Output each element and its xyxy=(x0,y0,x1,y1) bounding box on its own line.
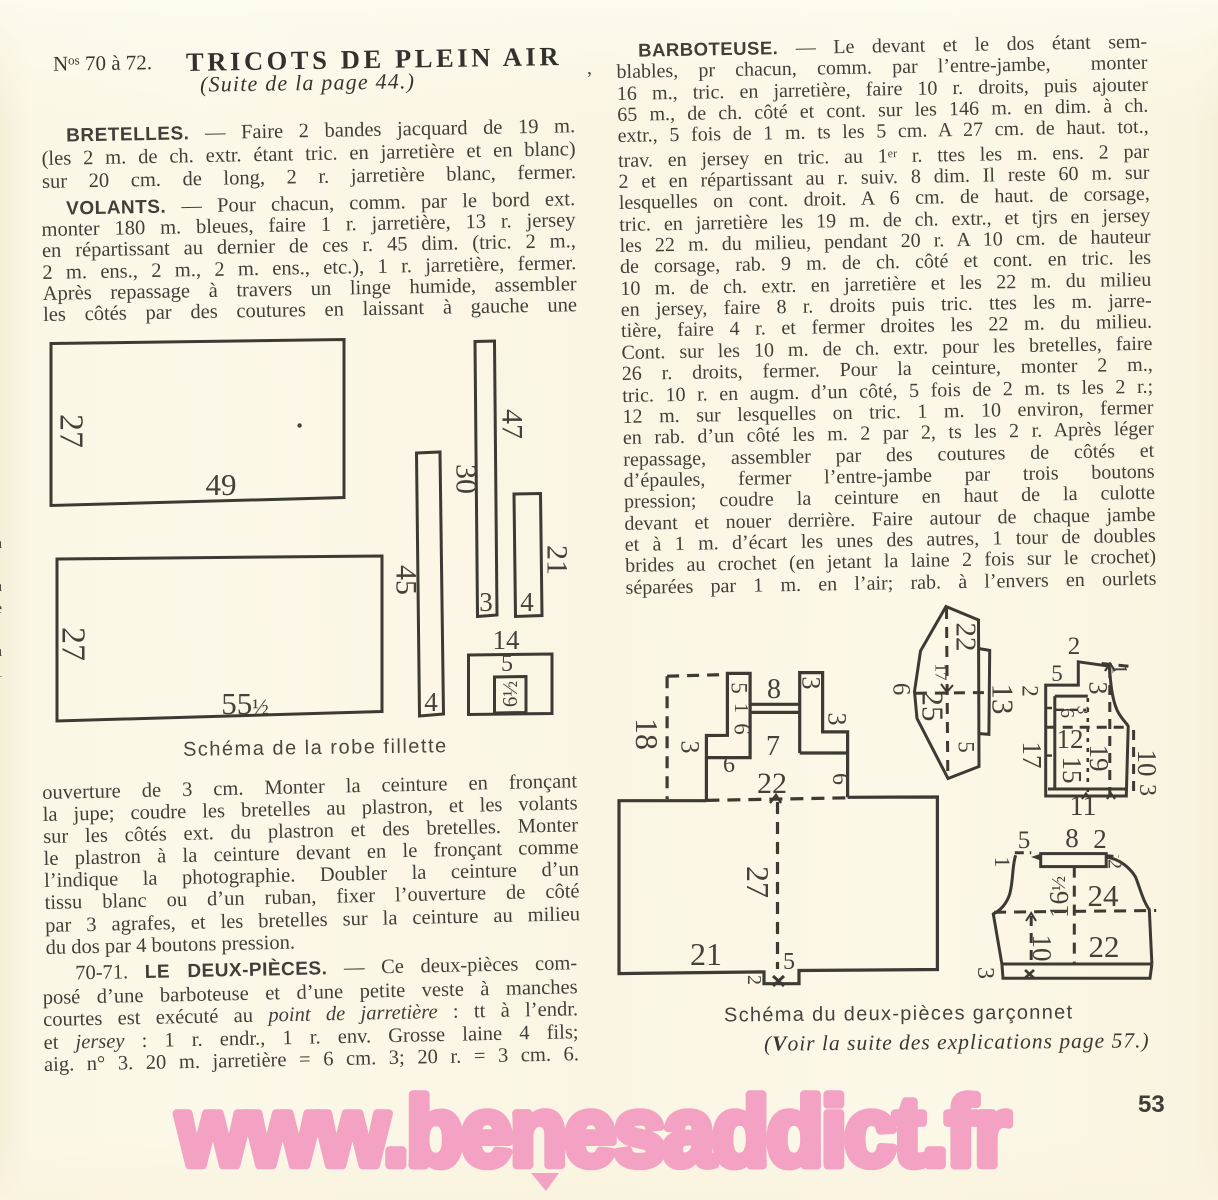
svg-text:5: 5 xyxy=(783,949,795,975)
svg-text:22: 22 xyxy=(950,623,982,652)
svg-text:17: 17 xyxy=(932,664,951,682)
svg-text:22: 22 xyxy=(757,767,787,800)
svg-text:3: 3 xyxy=(479,587,493,617)
svg-text:49: 49 xyxy=(206,467,237,502)
svg-text:45: 45 xyxy=(390,565,423,595)
svg-text:1: 1 xyxy=(1108,664,1133,675)
svg-text:2: 2 xyxy=(1068,633,1081,660)
svg-text:8: 8 xyxy=(1065,823,1079,853)
svg-text:1: 1 xyxy=(730,703,752,713)
svg-text:6½: 6½ xyxy=(498,681,522,707)
svg-text:4: 4 xyxy=(520,587,534,617)
svg-text:17: 17 xyxy=(1017,742,1047,769)
svg-text:2: 2 xyxy=(1093,824,1107,854)
svg-text:5: 5 xyxy=(727,682,752,694)
svg-text:12: 12 xyxy=(1057,724,1084,754)
svg-text:22: 22 xyxy=(1089,929,1120,964)
svg-text:10: 10 xyxy=(1132,750,1162,777)
svg-text:3: 3 xyxy=(1134,784,1160,796)
svg-text:11: 11 xyxy=(1070,791,1097,822)
svg-text:5: 5 xyxy=(1018,827,1031,854)
svg-text:21: 21 xyxy=(690,936,722,972)
svg-text:5: 5 xyxy=(501,651,513,677)
svg-text:2: 2 xyxy=(1018,685,1043,697)
svg-text:15: 15 xyxy=(1057,757,1087,784)
svg-text:6: 6 xyxy=(888,683,915,696)
svg-text:6: 6 xyxy=(827,773,853,785)
svg-text:3: 3 xyxy=(1074,706,1093,715)
svg-text:27: 27 xyxy=(53,414,90,448)
svg-text:4: 4 xyxy=(424,687,438,717)
svg-text:18: 18 xyxy=(629,718,665,750)
svg-text:6: 6 xyxy=(723,752,735,778)
svg-text:19: 19 xyxy=(1084,745,1114,772)
svg-text:21: 21 xyxy=(541,545,574,575)
svg-text:13: 13 xyxy=(986,684,1021,715)
svg-text:3: 3 xyxy=(972,967,998,979)
svg-text:47: 47 xyxy=(496,409,529,439)
svg-text:55½: 55½ xyxy=(221,686,269,721)
svg-text:7: 7 xyxy=(766,731,780,762)
svg-text:24: 24 xyxy=(1088,878,1120,913)
svg-text:5: 5 xyxy=(1051,661,1063,686)
svg-text:27: 27 xyxy=(55,627,92,661)
svg-text:3: 3 xyxy=(676,741,705,754)
svg-text:3: 3 xyxy=(823,713,852,726)
svg-text:3: 3 xyxy=(1084,682,1113,695)
svg-text:1: 1 xyxy=(990,857,1015,868)
svg-text:2: 2 xyxy=(743,975,765,985)
svg-text:2: 2 xyxy=(1104,859,1126,869)
svg-text:16½: 16½ xyxy=(1044,876,1074,918)
svg-text:5: 5 xyxy=(954,741,979,753)
svg-text:27: 27 xyxy=(740,866,776,898)
svg-text:10: 10 xyxy=(1027,935,1057,962)
svg-text:www.benesaddict.fr: www.benesaddict.fr xyxy=(176,1080,1010,1187)
svg-text:3: 3 xyxy=(797,677,826,690)
svg-text:25: 25 xyxy=(916,691,951,722)
svg-text:8: 8 xyxy=(767,674,781,705)
svg-text:30: 30 xyxy=(450,464,483,494)
svg-text:6: 6 xyxy=(730,723,755,735)
